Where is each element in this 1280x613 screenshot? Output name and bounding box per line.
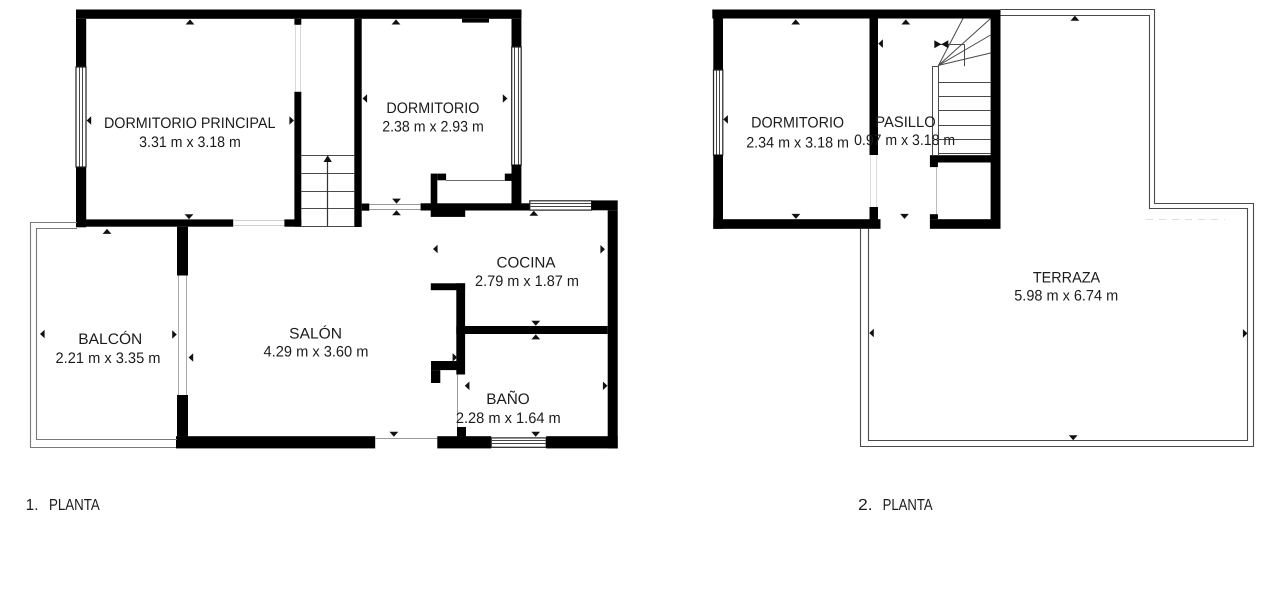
svg-text:4.29 m x 3.60 m: 4.29 m x 3.60 m (264, 343, 369, 360)
svg-text:5.98 m x 6.74 m: 5.98 m x 6.74 m (1014, 287, 1118, 304)
svg-text:2.: 2. (858, 497, 873, 514)
svg-text:DORMITORIO PRINCIPAL: DORMITORIO PRINCIPAL (104, 115, 276, 132)
svg-text:3.31 m x 3.18 m: 3.31 m x 3.18 m (139, 134, 241, 151)
svg-text:2.21 m x 3.35 m: 2.21 m x 3.35 m (56, 350, 161, 367)
svg-text:BALCÓN: BALCÓN (78, 330, 142, 348)
svg-text:2.28 m x 1.64 m: 2.28 m x 1.64 m (456, 410, 561, 427)
svg-text:DORMITORIO: DORMITORIO (386, 100, 479, 117)
svg-text:TERRAZA: TERRAZA (1033, 269, 1101, 286)
svg-text:0.97 m x 3.18 m: 0.97 m x 3.18 m (854, 132, 955, 149)
svg-text:1.: 1. (26, 497, 39, 514)
svg-text:DORMITORIO: DORMITORIO (751, 115, 844, 132)
svg-text:PLANTA: PLANTA (883, 497, 933, 514)
svg-text:BAÑO: BAÑO (486, 390, 530, 408)
svg-text:2.38 m x 2.93 m: 2.38 m x 2.93 m (382, 118, 484, 135)
svg-text:SALÓN: SALÓN (289, 324, 342, 342)
svg-text:COCINA: COCINA (497, 254, 557, 271)
svg-text:2.34 m x 3.18 m: 2.34 m x 3.18 m (746, 134, 849, 151)
svg-text:PASILLO: PASILLO (875, 114, 936, 131)
svg-text:PLANTA: PLANTA (49, 497, 100, 514)
svg-text:2.79 m x 1.87 m: 2.79 m x 1.87 m (475, 273, 579, 290)
